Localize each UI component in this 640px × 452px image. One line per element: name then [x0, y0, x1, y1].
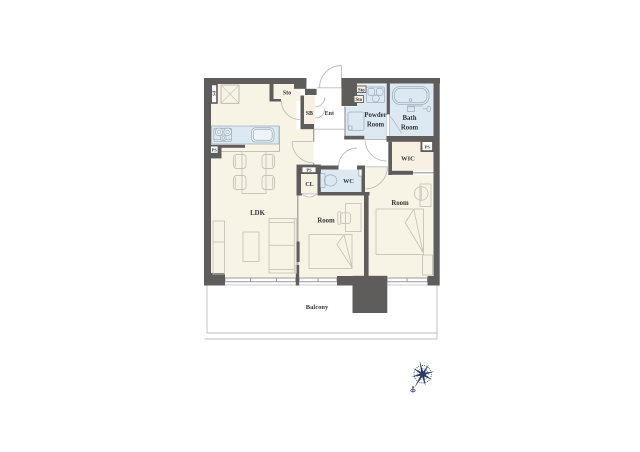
svg-text:Room: Room — [367, 121, 385, 128]
svg-text:Powder: Powder — [364, 112, 386, 119]
svg-text:CL: CL — [305, 182, 313, 188]
svg-text:PS: PS — [211, 91, 216, 97]
svg-text:Room: Room — [401, 124, 419, 131]
svg-text:Room: Room — [317, 218, 335, 225]
svg-text:Room: Room — [391, 200, 409, 207]
svg-text:SB: SB — [306, 111, 313, 117]
svg-text:WC: WC — [343, 178, 354, 185]
svg-text:Ent: Ent — [325, 111, 334, 117]
svg-text:Balcony: Balcony — [306, 304, 329, 311]
svg-text:LDK: LDK — [250, 210, 265, 217]
svg-text:PS: PS — [306, 168, 312, 173]
svg-text:Bath: Bath — [403, 115, 417, 122]
svg-text:Sto: Sto — [283, 91, 291, 97]
svg-text:WIC: WIC — [401, 156, 415, 163]
svg-text:Sto: Sto — [358, 88, 365, 93]
svg-text:PS: PS — [212, 148, 218, 153]
svg-text:PS: PS — [425, 144, 431, 149]
svg-text:Sto: Sto — [355, 98, 362, 103]
